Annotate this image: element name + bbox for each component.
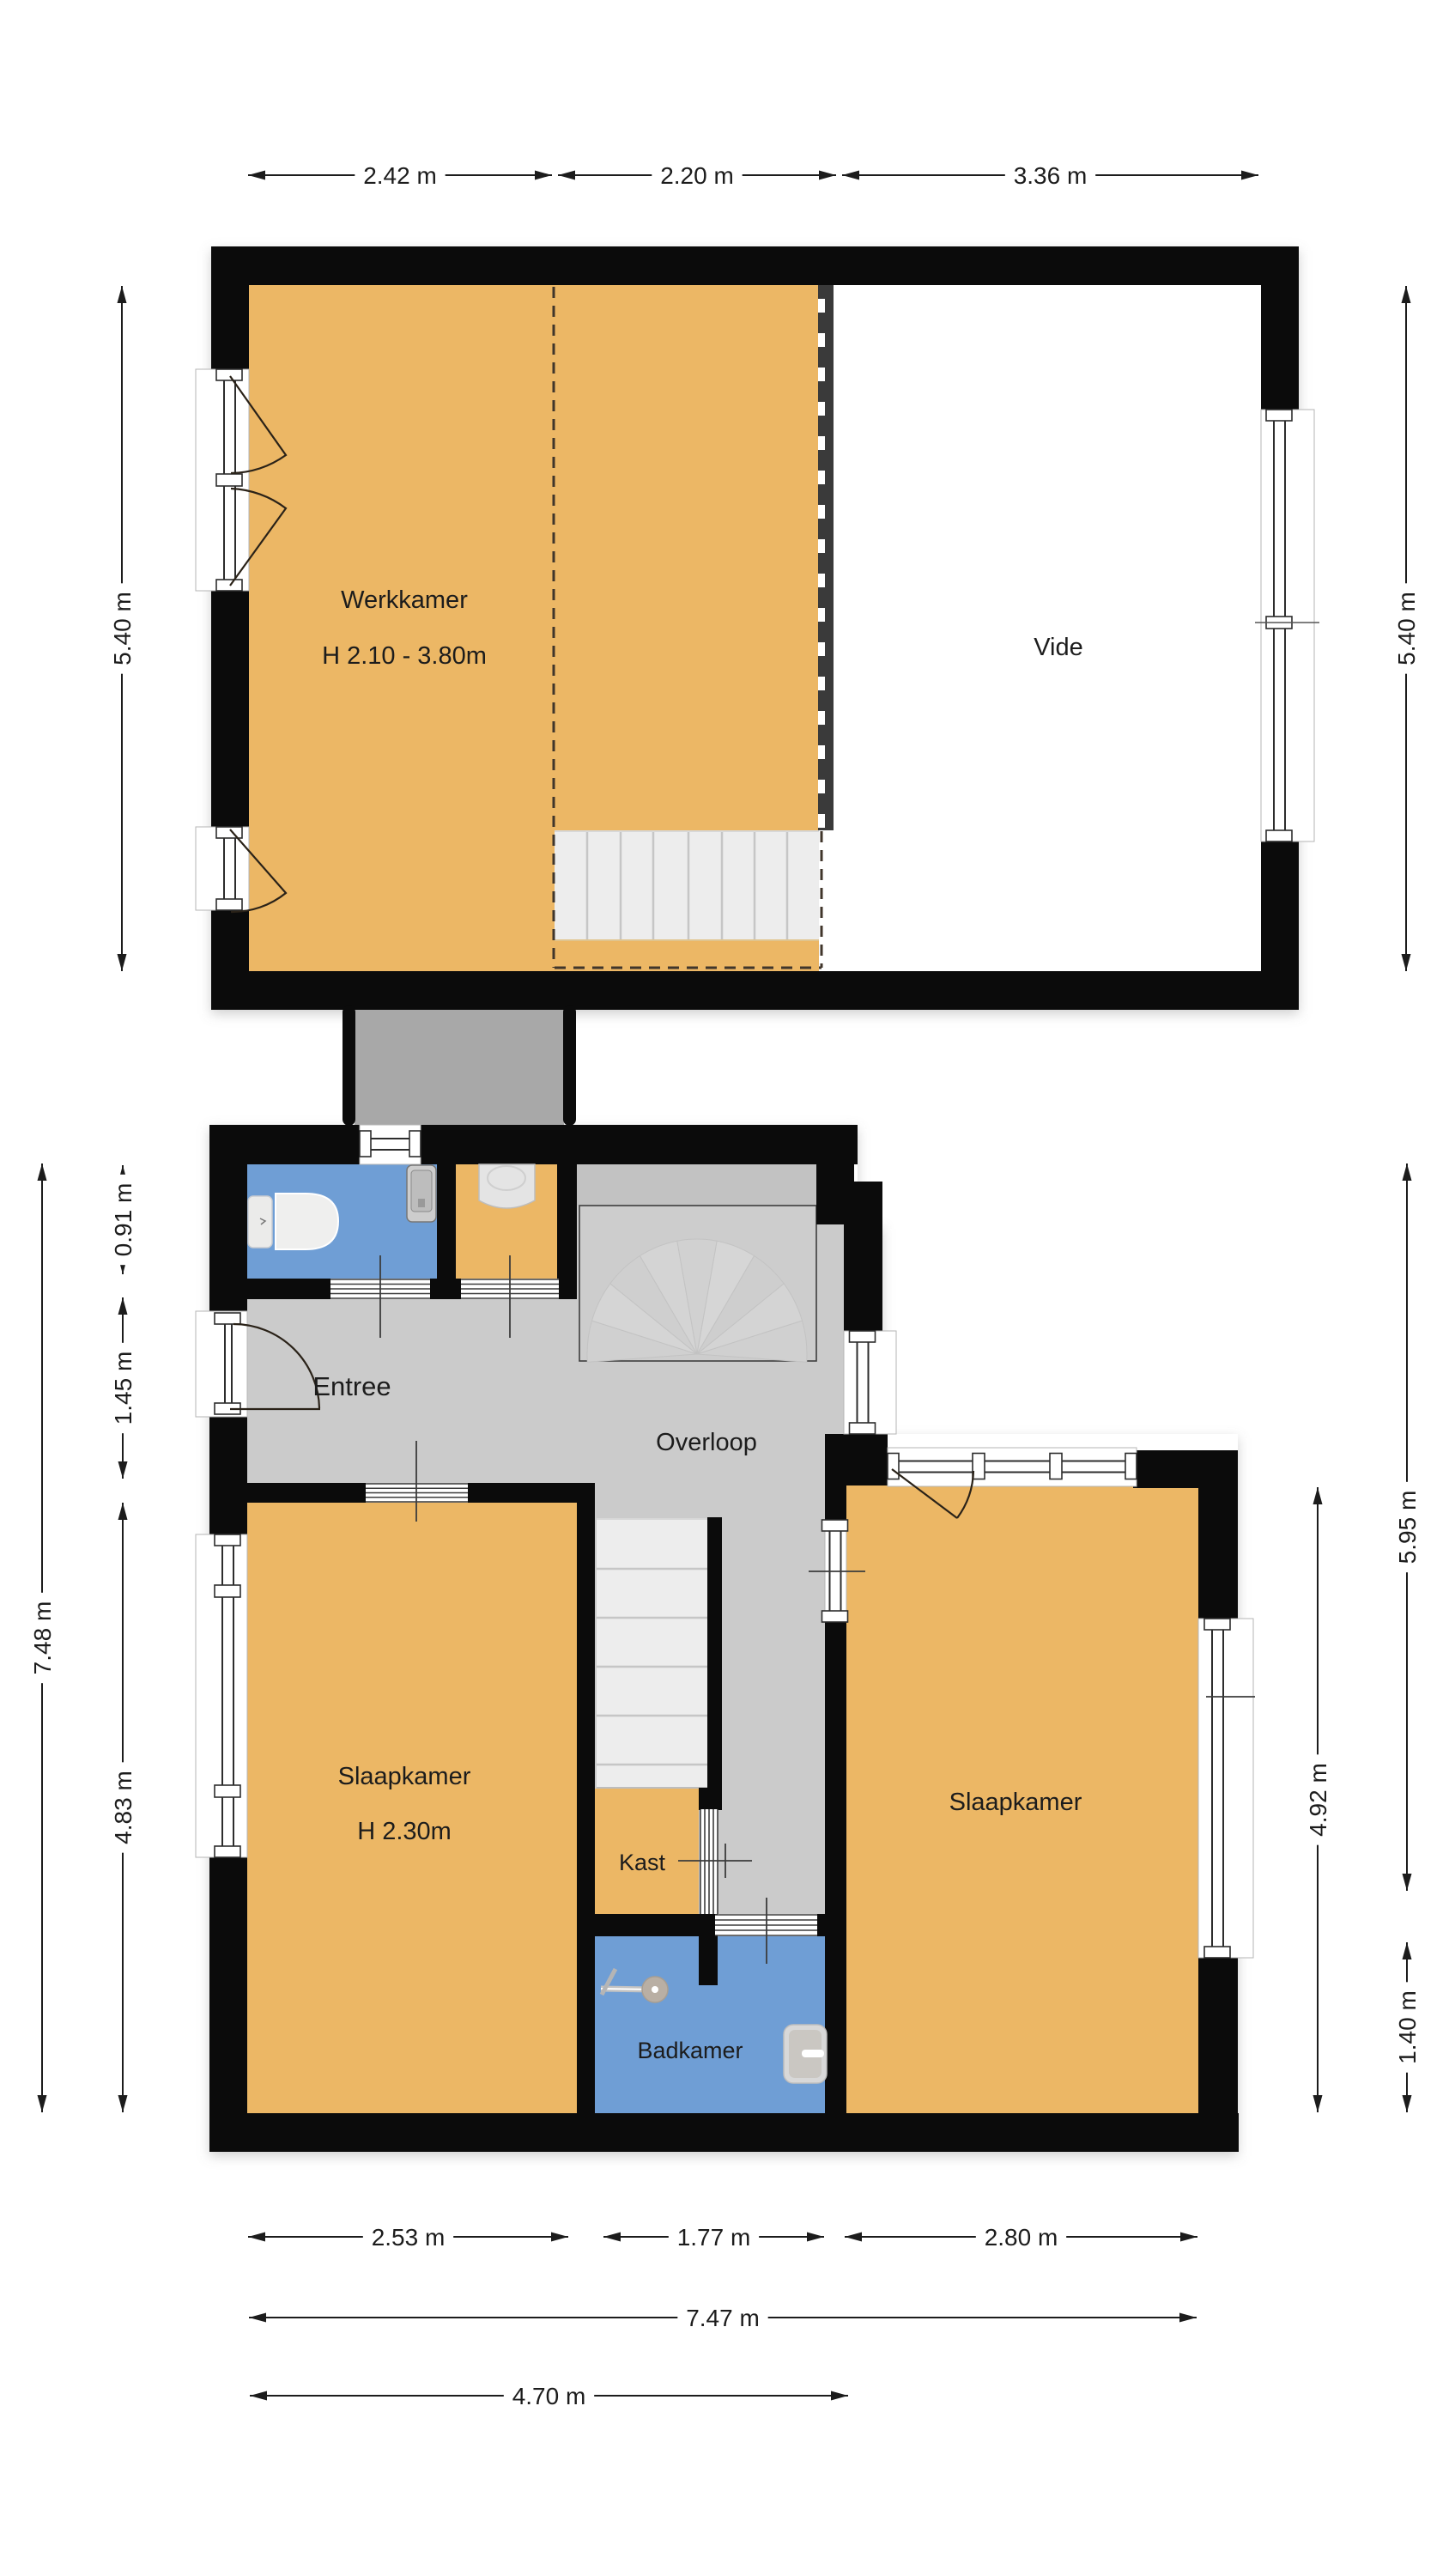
svg-text:5.40 m: 5.40 m (109, 592, 136, 665)
svg-text:2.20 m: 2.20 m (660, 162, 734, 189)
svg-text:7.48 m: 7.48 m (29, 1601, 56, 1675)
svg-text:4.70 m: 4.70 m (512, 2383, 586, 2409)
svg-text:1.77 m: 1.77 m (677, 2224, 751, 2251)
svg-text:Badkamer: Badkamer (637, 2038, 743, 2063)
svg-text:0.91 m: 0.91 m (110, 1183, 136, 1257)
svg-text:4.92 m: 4.92 m (1305, 1763, 1331, 1837)
svg-text:Overloop: Overloop (656, 1429, 757, 1456)
svg-text:Vide: Vide (1034, 634, 1083, 661)
svg-text:Slaapkamer: Slaapkamer (949, 1789, 1082, 1816)
svg-text:2.53 m: 2.53 m (372, 2224, 446, 2251)
svg-text:7.47 m: 7.47 m (686, 2305, 760, 2331)
svg-text:Entree: Entree (312, 1371, 391, 1401)
svg-text:5.40 m: 5.40 m (1393, 592, 1420, 665)
svg-text:Slaapkamer: Slaapkamer (338, 1763, 471, 1790)
svg-text:5.95 m: 5.95 m (1394, 1491, 1421, 1564)
svg-text:Kast: Kast (619, 1850, 666, 1875)
svg-text:1.40 m: 1.40 m (1394, 1990, 1421, 2064)
svg-text:2.42 m: 2.42 m (363, 162, 437, 189)
svg-text:2.80 m: 2.80 m (985, 2224, 1058, 2251)
svg-text:Werkkamer: Werkkamer (341, 586, 468, 614)
svg-text:1.45 m: 1.45 m (110, 1352, 136, 1425)
svg-text:3.36 m: 3.36 m (1014, 162, 1088, 189)
svg-text:4.83 m: 4.83 m (110, 1771, 136, 1844)
svg-text:H 2.10 - 3.80m: H 2.10 - 3.80m (322, 642, 487, 670)
svg-text:H 2.30m: H 2.30m (357, 1818, 452, 1845)
